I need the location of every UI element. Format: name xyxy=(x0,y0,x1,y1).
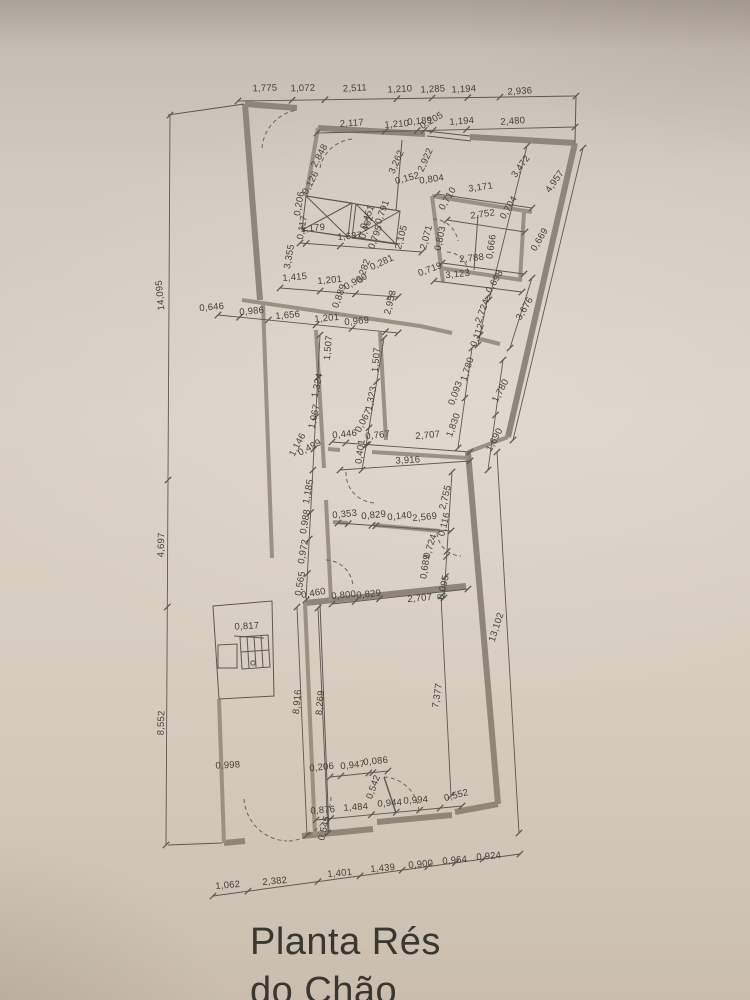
dimension-label: 1,507 xyxy=(370,347,383,373)
floor-plan-drawing: 1,7751,0722,5111,2101,2851,1942,9362,117… xyxy=(0,0,750,1000)
dimension-line xyxy=(238,96,576,101)
dimension-label: 2,936 xyxy=(507,85,532,97)
dimension-label: 2,788 xyxy=(459,252,485,266)
dimension-label: 0,689 xyxy=(418,554,432,580)
dimension-label: 1,324 xyxy=(310,372,326,399)
dimension-label: 1,507 xyxy=(322,335,335,361)
dimension-label: 0,969 xyxy=(344,315,370,328)
dimension-label: 0,086 xyxy=(363,755,389,769)
dimension-label: 0,206 xyxy=(292,190,307,216)
dimension-label: 1,656 xyxy=(275,309,301,322)
dimension-label: 2,480 xyxy=(500,115,525,128)
dimension-label: 0,669 xyxy=(529,226,551,253)
dimension-label: 1,194 xyxy=(449,115,474,128)
dimension-label: 0,889 xyxy=(330,283,349,310)
dimension-label: 0,791 xyxy=(373,199,392,226)
dimension-tick xyxy=(507,345,513,351)
dimension-label: 2,724 xyxy=(473,298,492,325)
dimension-label: 2,953 xyxy=(382,289,399,316)
dimension-tick xyxy=(580,145,586,151)
dimension-label: 1,285 xyxy=(420,83,445,95)
dimension-label: 0,988 xyxy=(298,508,313,534)
dimension-label: 0,206 xyxy=(309,761,335,775)
dimension-labels-layer: 1,7751,0722,5111,2101,2851,1942,9362,117… xyxy=(154,82,567,892)
dimension-label: 0,545 xyxy=(316,815,333,842)
dimension-label: 1,185 xyxy=(301,478,316,504)
dimension-tick xyxy=(524,143,530,149)
dimension-label: 0,112 xyxy=(468,322,487,348)
dimension-label: 0,829 xyxy=(361,509,387,523)
dimension-label: 0,205 xyxy=(418,110,445,132)
dimension-label: 1,775 xyxy=(252,83,277,95)
dimension-label: 14,095 xyxy=(154,280,168,311)
dimension-label: 1,210 xyxy=(387,83,412,95)
dimension-label: 1,179 xyxy=(300,222,326,235)
dimension-label: 2,105 xyxy=(393,224,410,251)
dimension-label: 0,986 xyxy=(239,305,265,318)
dimension-label: 8,916 xyxy=(291,689,304,715)
dimension-label: 3,171 xyxy=(468,180,494,194)
dimension-label: 2,382 xyxy=(262,875,288,888)
dimension-label: 0,964 xyxy=(442,854,468,867)
dimension-line xyxy=(318,608,328,833)
dimension-label: 2,755 xyxy=(437,484,454,511)
dimension-label: 8,269 xyxy=(314,690,327,716)
dimension-label: 1,072 xyxy=(290,83,315,95)
dimension-label: 0,281 xyxy=(368,253,395,273)
dimension-label: 2,922 xyxy=(416,146,436,173)
stair xyxy=(213,601,274,699)
dimension-line xyxy=(447,220,525,232)
dimension-line xyxy=(332,442,470,452)
photographed-drawing-sheet: 1,7751,0722,5111,2101,2851,1942,9362,117… xyxy=(0,0,750,1000)
dimension-tick xyxy=(529,275,535,281)
dimension-label: 3,123 xyxy=(445,268,471,282)
dimension-label: 1,201 xyxy=(314,312,340,325)
drawing-title-line2: do Chão xyxy=(250,967,570,1000)
dimension-label: 1,401 xyxy=(327,867,353,880)
dimension-label: 1,323 xyxy=(364,385,380,412)
dimension-label: 0,698 xyxy=(484,268,506,295)
dimension-label: 1,484 xyxy=(343,801,368,814)
dimension-label: 1,210 xyxy=(384,118,409,131)
dimension-label: 0,353 xyxy=(332,508,358,522)
dimension-label: 2,511 xyxy=(343,82,368,94)
dimension-label: 2,569 xyxy=(412,511,438,525)
dimension-line xyxy=(434,281,522,292)
dimension-line xyxy=(338,523,451,531)
dimension-label: 0,817 xyxy=(234,620,259,632)
dimension-label: 3,262 xyxy=(387,148,407,175)
dimension-label: 3,916 xyxy=(395,454,420,466)
dimension-label: 0,767 xyxy=(365,429,391,443)
dimension-label: 2,707 xyxy=(407,592,433,605)
dimension-label: 1,194 xyxy=(451,83,476,95)
dimension-label: 0,116 xyxy=(436,511,452,537)
dimension-label: 0,944 xyxy=(377,797,402,810)
drawing-title: Planta Rés do Chão xyxy=(250,918,570,1000)
dimension-label: 1,439 xyxy=(370,862,396,875)
dimension-label: 3,472 xyxy=(509,153,532,180)
dimension-label: 1,062 xyxy=(215,879,241,892)
dimension-label: 0,719 xyxy=(417,260,444,279)
dimension-label: 1,780 xyxy=(459,356,477,383)
dimension-label: 7,377 xyxy=(430,683,444,709)
drawing-title-line1: Planta Rés xyxy=(250,918,570,967)
dimension-label: 4,697 xyxy=(156,532,168,557)
dimension-label: 2,707 xyxy=(415,429,441,442)
dimension-line xyxy=(497,452,519,833)
dimension-label: 0,446 xyxy=(332,428,358,442)
dimension-label: 0,140 xyxy=(387,510,413,524)
dimension-label: 0,542 xyxy=(364,774,383,801)
dimension-label: 8,552 xyxy=(156,710,168,735)
dimension-label: 1,780 xyxy=(490,377,511,404)
dimension-label: 3,355 xyxy=(282,243,297,269)
dimension-label: 0,401 xyxy=(353,439,367,465)
dimension-label: 1,415 xyxy=(282,271,308,284)
dimension-label: 0,552 xyxy=(443,787,470,804)
dimension-label: 0,994 xyxy=(403,794,428,807)
dimension-label: 0,646 xyxy=(199,301,225,314)
dimension-label: 0,947 xyxy=(340,759,366,773)
dimension-label: 0,093 xyxy=(446,380,465,407)
dimension-label: 0,998 xyxy=(215,759,240,771)
dimension-label: 0,972 xyxy=(296,538,311,564)
dimension-label: 13,102 xyxy=(487,611,507,643)
dimension-label: 0,804 xyxy=(419,172,445,186)
dimension-label: 2,117 xyxy=(339,117,364,130)
dimension-line xyxy=(213,854,520,896)
dimension-label: 0,900 xyxy=(408,858,434,871)
dimension-label: 0,876 xyxy=(310,804,335,817)
dimension-tick xyxy=(510,437,516,443)
dimension-label: 0,924 xyxy=(476,850,502,863)
dimension-label: 0,666 xyxy=(484,234,498,260)
dimension-label: 2,752 xyxy=(470,207,496,221)
